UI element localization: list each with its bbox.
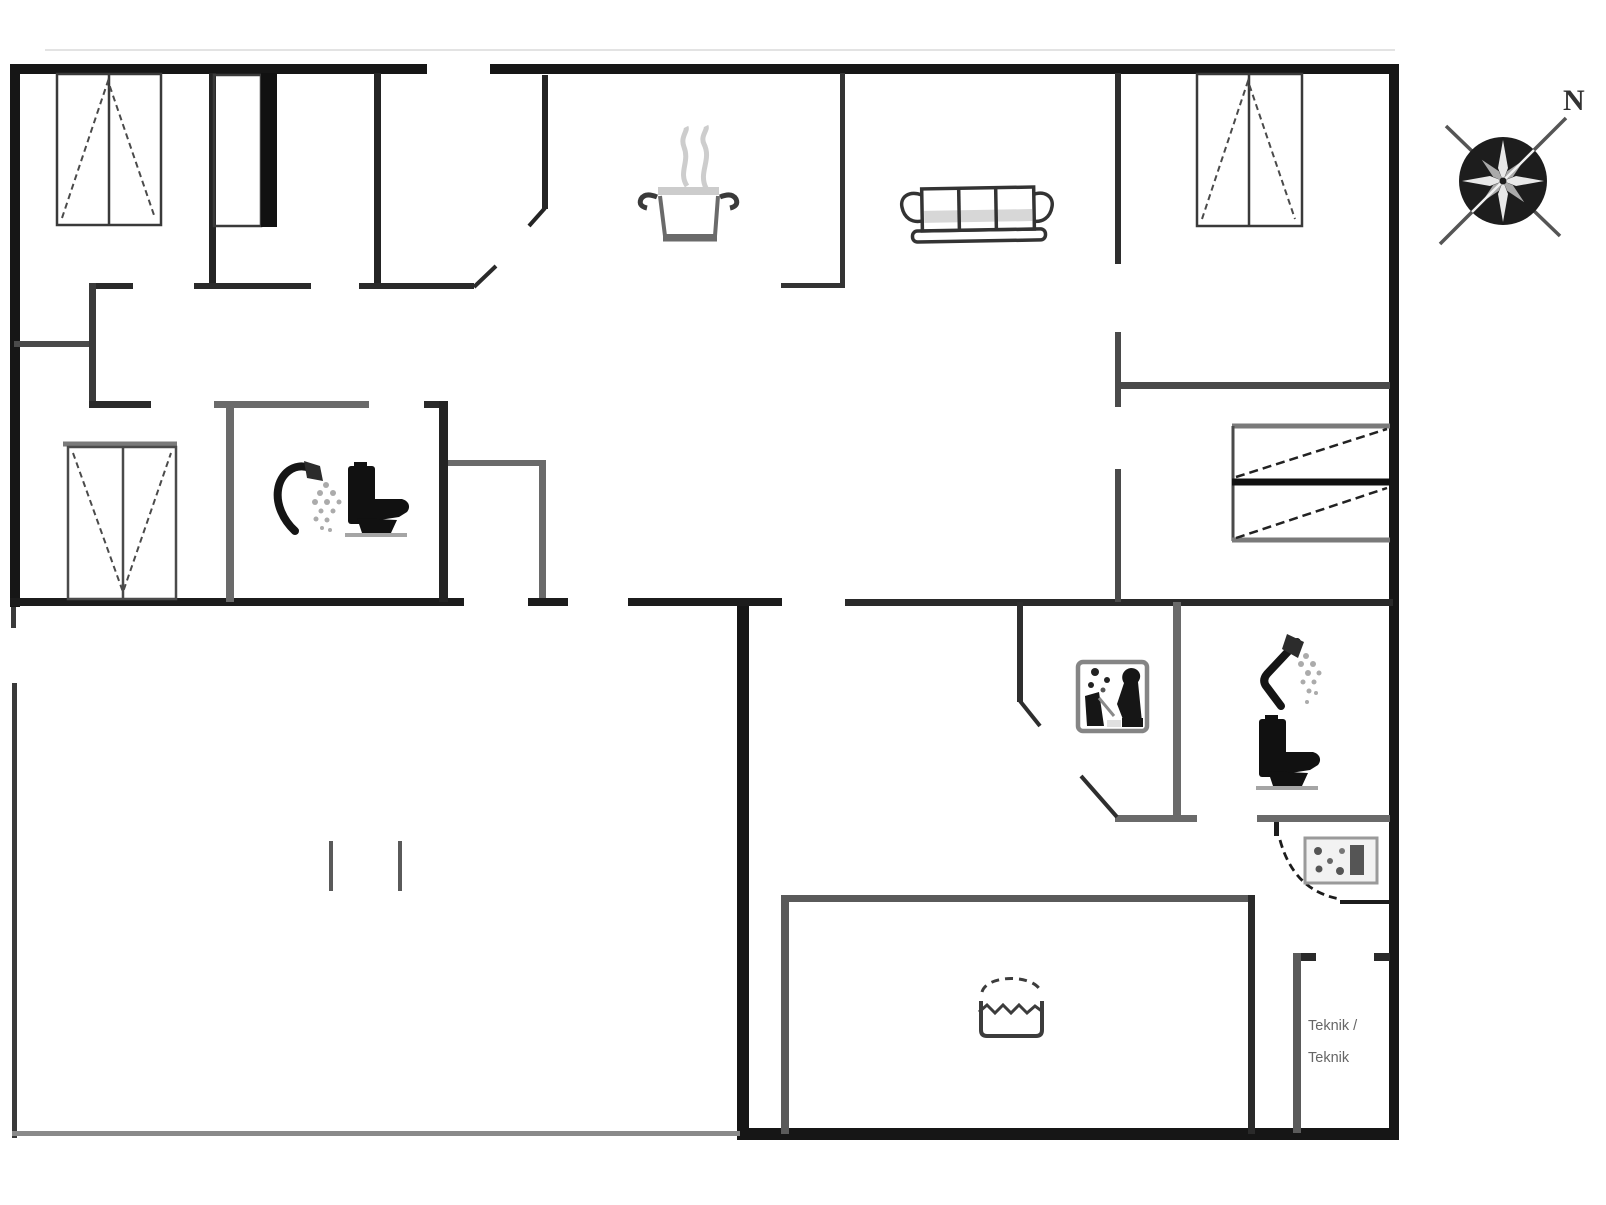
svg-text:Teknik: Teknik (1308, 1050, 1350, 1066)
svg-text:Teknik /: Teknik / (1308, 1018, 1358, 1034)
svg-text:N: N (1563, 84, 1585, 117)
